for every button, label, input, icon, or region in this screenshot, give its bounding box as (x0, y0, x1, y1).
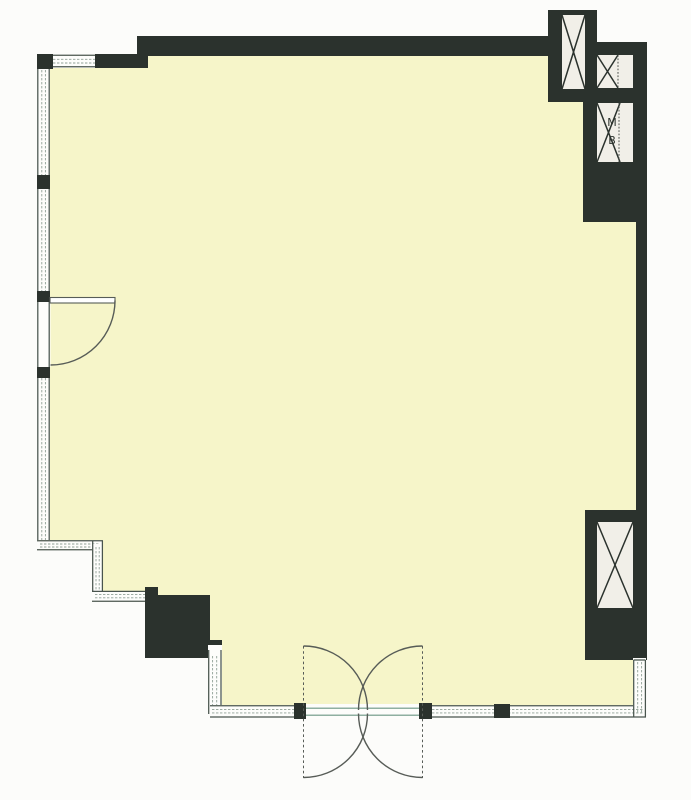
glazing-band (633, 658, 646, 708)
mullion (494, 704, 510, 718)
corner-post (37, 54, 53, 69)
double-door-swing-icon (359, 714, 423, 778)
room-floor (50, 56, 636, 706)
wall-segment-low (95, 54, 148, 68)
door-opening (306, 704, 420, 719)
wall-segment (633, 42, 647, 222)
mb-shaft (597, 103, 633, 162)
wall-segment-main (137, 36, 560, 56)
glazing-band (208, 645, 222, 714)
door-post (419, 703, 432, 719)
mullion (37, 175, 50, 189)
shaft-label: B (608, 134, 616, 147)
wall-segment (636, 222, 647, 512)
door-jamb-gap (37, 302, 51, 367)
shaft-wall (548, 88, 597, 102)
door-post (294, 703, 306, 719)
door-post (37, 367, 50, 378)
floor-plan-page: M B (0, 0, 691, 800)
shaft-label: M (607, 116, 617, 129)
glazing-band (92, 591, 150, 602)
double-door-swing-icon (304, 714, 368, 778)
door-leaf (50, 298, 115, 304)
window-wall-top-left (53, 54, 95, 68)
door-post (37, 291, 50, 302)
floor-plan-canvas: M B (0, 0, 691, 800)
elevator-block-bottom-right (585, 510, 647, 660)
glazing-band (53, 54, 95, 68)
